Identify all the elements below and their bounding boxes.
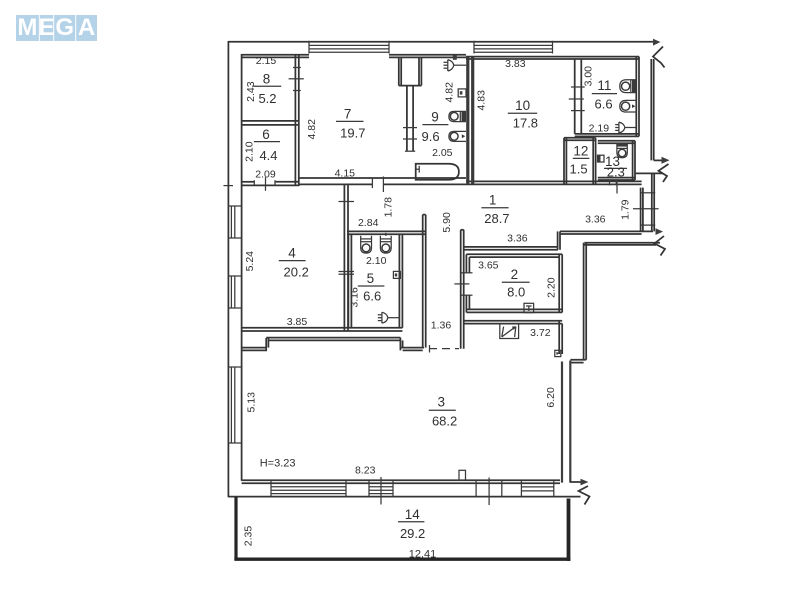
svg-text:1.36: 1.36 xyxy=(431,320,452,332)
svg-text:3.00: 3.00 xyxy=(583,66,595,87)
svg-text:4.15: 4.15 xyxy=(335,167,356,179)
svg-text:17.8: 17.8 xyxy=(513,116,538,131)
svg-text:12: 12 xyxy=(573,144,588,159)
svg-text:6: 6 xyxy=(262,127,270,142)
svg-text:3.83: 3.83 xyxy=(505,58,526,70)
svg-text:1.78: 1.78 xyxy=(383,197,395,218)
svg-text:G: G xyxy=(55,14,74,41)
svg-text:3.36: 3.36 xyxy=(507,232,528,244)
svg-text:5.24: 5.24 xyxy=(244,251,256,272)
svg-text:29.2: 29.2 xyxy=(400,526,425,541)
svg-text:2.20: 2.20 xyxy=(545,277,557,298)
svg-text:11: 11 xyxy=(597,78,611,93)
svg-text:3.72: 3.72 xyxy=(530,327,551,339)
svg-text:2.19: 2.19 xyxy=(589,123,610,135)
svg-text:1.5: 1.5 xyxy=(570,162,588,177)
svg-text:2.15: 2.15 xyxy=(256,55,277,67)
svg-text:1: 1 xyxy=(489,192,497,207)
svg-text:4.82: 4.82 xyxy=(306,119,318,140)
svg-text:3: 3 xyxy=(437,395,445,410)
svg-text:8.23: 8.23 xyxy=(355,464,376,476)
svg-text:3.16: 3.16 xyxy=(349,287,361,308)
svg-text:5.90: 5.90 xyxy=(441,212,453,233)
svg-text:20.2: 20.2 xyxy=(284,265,309,280)
svg-text:6.6: 6.6 xyxy=(595,97,613,112)
svg-text:4: 4 xyxy=(288,245,296,260)
svg-text:H=3.23: H=3.23 xyxy=(260,457,296,469)
svg-text:6.6: 6.6 xyxy=(363,288,381,303)
svg-text:68.2: 68.2 xyxy=(432,413,457,428)
svg-text:2.43: 2.43 xyxy=(245,81,257,102)
svg-text:5: 5 xyxy=(367,271,375,286)
svg-text:M: M xyxy=(17,14,37,41)
svg-text:5.2: 5.2 xyxy=(258,91,276,106)
svg-text:2.05: 2.05 xyxy=(432,147,453,159)
svg-text:3.65: 3.65 xyxy=(478,259,499,271)
svg-text:8.0: 8.0 xyxy=(507,285,525,300)
svg-text:8: 8 xyxy=(263,72,271,87)
svg-text:A: A xyxy=(78,14,95,41)
svg-text:12.41: 12.41 xyxy=(409,548,437,560)
svg-text:9.6: 9.6 xyxy=(422,129,440,144)
svg-text:4.4: 4.4 xyxy=(259,148,277,163)
svg-text:1.79: 1.79 xyxy=(619,199,631,220)
svg-text:2.09: 2.09 xyxy=(255,168,276,180)
svg-text:2: 2 xyxy=(511,267,519,282)
svg-text:2.84: 2.84 xyxy=(358,217,379,229)
svg-text:3.36: 3.36 xyxy=(585,213,606,225)
svg-text:4.83: 4.83 xyxy=(475,90,487,111)
svg-text:19.7: 19.7 xyxy=(340,126,365,141)
svg-text:2.3: 2.3 xyxy=(607,164,625,179)
svg-text:14: 14 xyxy=(405,507,421,522)
svg-text:10: 10 xyxy=(515,98,530,113)
svg-text:3.85: 3.85 xyxy=(287,316,308,328)
svg-text:E: E xyxy=(38,14,54,41)
svg-text:9: 9 xyxy=(431,109,439,124)
svg-text:2.10: 2.10 xyxy=(244,141,256,162)
svg-text:2.35: 2.35 xyxy=(243,526,255,547)
svg-text:6.20: 6.20 xyxy=(545,387,557,408)
svg-text:2.10: 2.10 xyxy=(366,255,387,267)
svg-text:28.7: 28.7 xyxy=(484,211,509,226)
svg-text:4.82: 4.82 xyxy=(444,82,456,103)
svg-text:5.13: 5.13 xyxy=(245,392,257,413)
svg-text:7: 7 xyxy=(344,107,352,122)
